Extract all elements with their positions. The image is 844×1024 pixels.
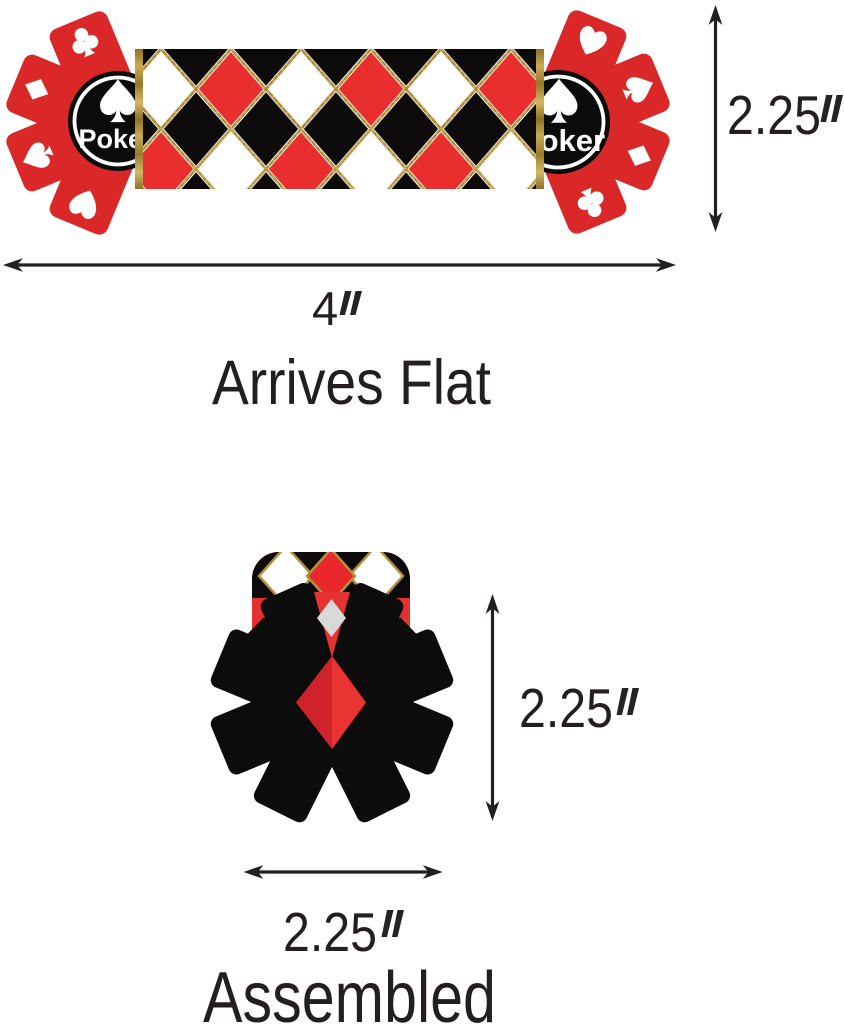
svg-text:4: 4 bbox=[312, 282, 338, 335]
svg-text:2.25: 2.25 bbox=[519, 677, 613, 739]
svg-text:Assembled: Assembled bbox=[203, 958, 496, 1024]
svg-text:Arrives Flat: Arrives Flat bbox=[212, 348, 491, 418]
svg-text:2.25: 2.25 bbox=[283, 901, 377, 963]
svg-text:2.25: 2.25 bbox=[727, 84, 821, 146]
